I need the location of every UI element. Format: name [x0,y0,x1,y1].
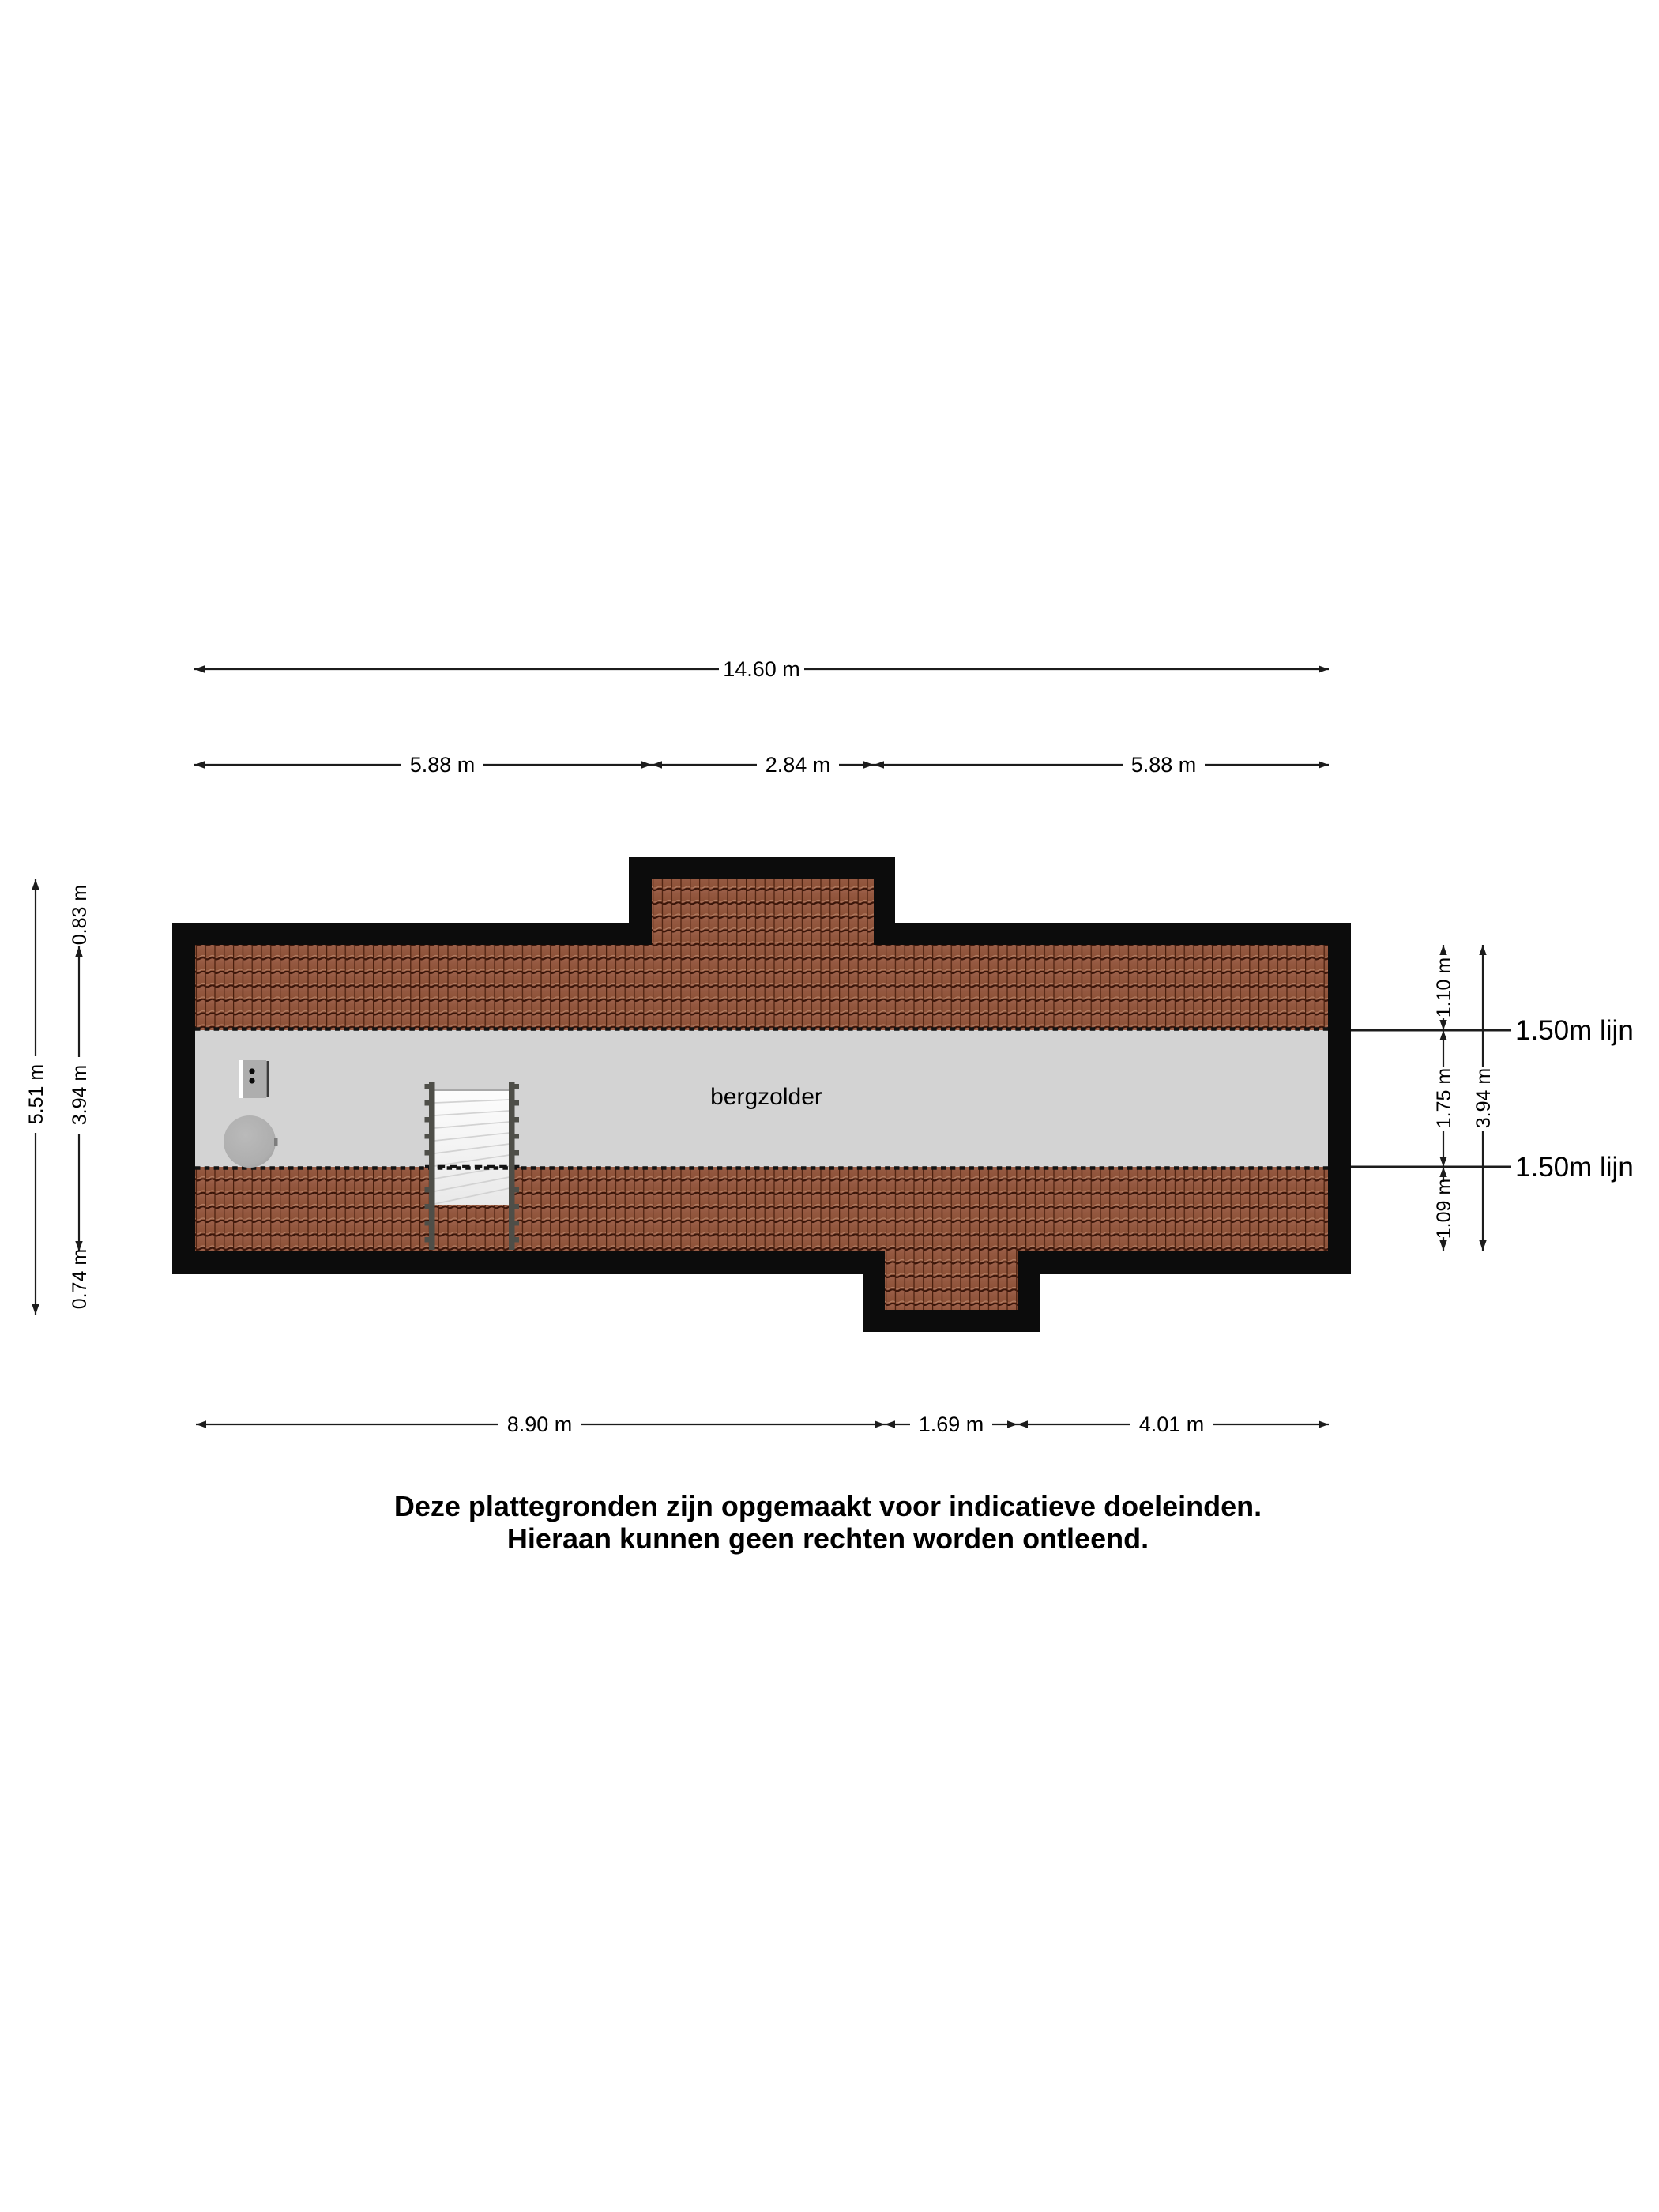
svg-text:14.60 m: 14.60 m [723,657,800,681]
svg-text:3.94 m: 3.94 m [69,1065,91,1125]
svg-text:Deze plattegronden zijn opgema: Deze plattegronden zijn opgemaakt voor i… [394,1490,1262,1522]
svg-text:1.69 m: 1.69 m [919,1413,984,1436]
svg-text:1.09 m: 1.09 m [1433,1179,1455,1239]
svg-text:1.75 m: 1.75 m [1433,1068,1455,1128]
svg-text:1.50m lijn: 1.50m lijn [1515,1015,1634,1046]
svg-text:5.88 m: 5.88 m [1131,753,1197,777]
svg-text:3.94 m: 3.94 m [1473,1068,1495,1128]
svg-text:5.51 m: 5.51 m [25,1064,47,1124]
svg-text:Hieraan kunnen geen rechten wo: Hieraan kunnen geen rechten worden ontle… [507,1522,1149,1555]
svg-text:bergzolder: bergzolder [710,1084,822,1110]
svg-text:8.90 m: 8.90 m [507,1413,573,1436]
svg-text:1.10 m: 1.10 m [1433,957,1455,1018]
svg-text:1.50m lijn: 1.50m lijn [1515,1152,1634,1183]
svg-text:0.83 m: 0.83 m [69,885,91,945]
svg-text:4.01 m: 4.01 m [1139,1413,1205,1436]
svg-text:0.74 m: 0.74 m [69,1249,91,1309]
svg-text:5.88 m: 5.88 m [410,753,476,777]
svg-text:2.84 m: 2.84 m [766,753,831,777]
